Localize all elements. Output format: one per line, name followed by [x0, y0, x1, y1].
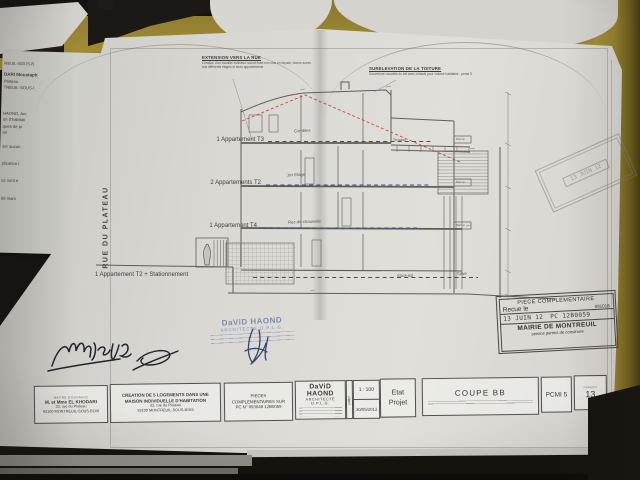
bottom-shadow — [0, 474, 640, 480]
architect-address-microtext — [299, 407, 341, 417]
status-line2: Projet — [389, 398, 407, 407]
disclaimer-microtext — [428, 399, 534, 405]
bottom-right-shadow — [588, 385, 640, 480]
title-block-owner-cell: MAITRE D'OUVRAGE M. et Mme EL KHODARI 33… — [34, 385, 108, 424]
owner-signature — [48, 343, 131, 371]
architect-title: ARCHITECTE D.P.L.G. — [296, 397, 345, 406]
paper-stack-edge — [0, 455, 252, 466]
status-line1: Etat — [392, 389, 405, 398]
pcmi-code: PCMI 5 — [546, 391, 568, 398]
project-address2: 93100 MONTREUIL-SOUS-BOIS — [137, 408, 193, 413]
date-label: DATE — [348, 397, 351, 404]
title-block-code-cell: PCMI 5 — [541, 376, 572, 412]
title-block: MAITRE D'OUVRAGE M. et Mme EL KHODARI 33… — [28, 376, 610, 427]
second-signature — [133, 351, 178, 370]
title-block-scale-date-cell: 1 : 100 30/05/2012 — [353, 380, 380, 419]
pieces-line3: PC N° 093048 12B0059 — [236, 404, 282, 410]
owner-address2: 93100 MONTREUIL-SOUS-BOIS — [43, 409, 99, 414]
title-block-architect-cell: DaViD HAOND ARCHITECTE D.P.L.G. — [295, 380, 346, 420]
sheet-title: COUPE BB — [455, 388, 506, 398]
scale-value: 1 : 100 — [354, 381, 379, 400]
date-value: 30/05/2012 — [354, 400, 379, 418]
title-block-project-cell: CREATION DE 5 LOGEMENTS DANS UNE MAISON … — [110, 383, 221, 423]
title-block-sheet-title-cell: COUPE BB — [422, 377, 539, 416]
architect-name: DaViD HAOND — [296, 383, 345, 398]
title-block-pieces-cell: PIECES COMPLEMENTAIRES SUR PC N° 093048 … — [224, 382, 293, 422]
architect-blue-signature — [245, 329, 268, 364]
photo-architectural-drawing-scene: REUIL-SOUS-B DARI Moustaph Plateau TREUI… — [0, 0, 640, 480]
title-block-status-cell: Etat Projet — [380, 378, 416, 417]
